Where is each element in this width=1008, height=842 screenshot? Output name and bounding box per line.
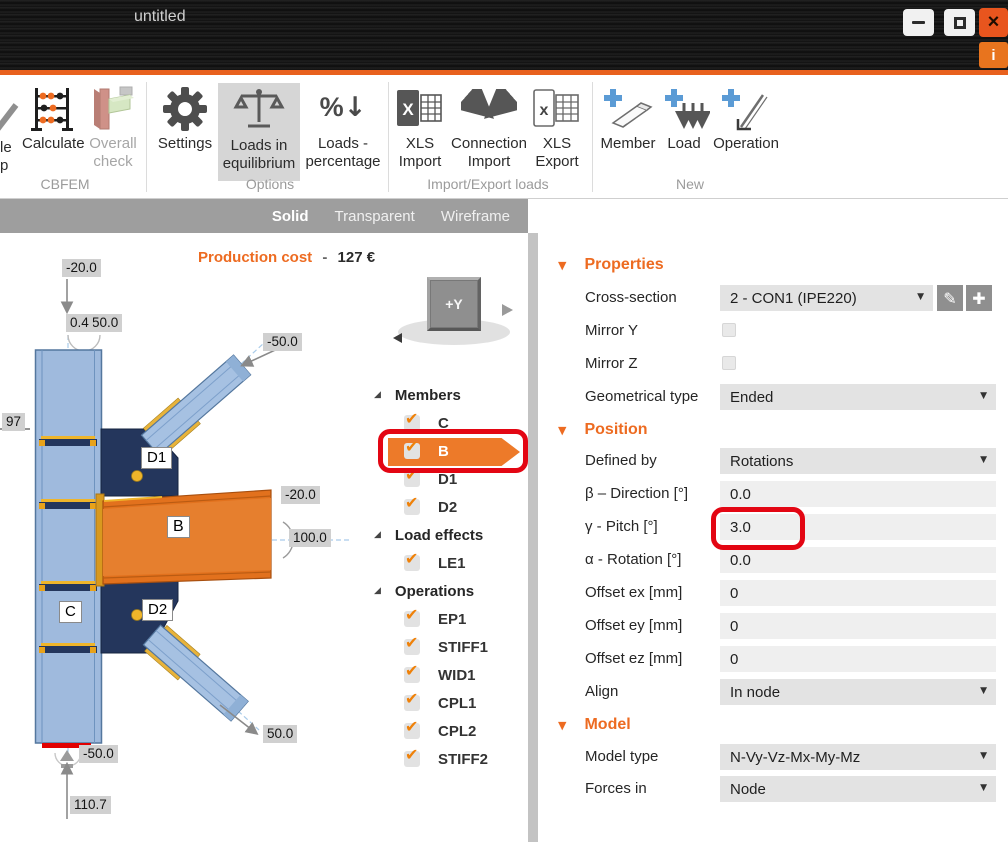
tab-wireframe[interactable]: Wireframe xyxy=(441,208,510,225)
tree-section-members[interactable]: ◢ Members xyxy=(360,382,528,408)
converging-arrows-icon xyxy=(450,83,528,133)
dim-label: 50.0 xyxy=(263,725,297,743)
tree-item-stiff1[interactable]: ✔ STIFF1 xyxy=(360,634,528,660)
production-cost: Production cost - 127 € xyxy=(198,249,375,266)
chevron-down-icon: ▼ xyxy=(980,455,987,465)
tree-item-cpl1[interactable]: ✔ CPL1 xyxy=(360,690,528,716)
loads-in-equilibrium-button[interactable]: Loads in equilibrium xyxy=(218,83,300,181)
group-label-import-export: Import/Export loads xyxy=(408,176,568,192)
settings-button[interactable]: Settings xyxy=(154,83,216,175)
tree-item-d1[interactable]: ✔ D1 xyxy=(360,466,528,492)
group-label-options: Options xyxy=(210,176,330,192)
row-offset-ey: Offset ey [mm] 0 xyxy=(538,613,1008,639)
clipped-pencil-icon xyxy=(0,83,20,133)
add-load-icon xyxy=(662,83,706,133)
abacus-icon xyxy=(22,83,82,133)
offset-ey-input[interactable]: 0 xyxy=(720,613,996,639)
chevron-down-icon: ▼ xyxy=(980,783,987,793)
model-tree: ◢ Members ✔ C ✔ B ✔ D1 ✔ D2 ◢ Load effec… xyxy=(360,233,528,842)
connection-check-icon xyxy=(84,83,142,133)
offset-ex-input[interactable]: 0 xyxy=(720,580,996,606)
gear-icon xyxy=(154,83,216,133)
percent-arrow-icon: %↓ xyxy=(302,83,384,133)
align-dropdown[interactable]: In node ▼ xyxy=(720,679,996,705)
chevron-down-icon: ▼ xyxy=(980,391,987,401)
tab-transparent[interactable]: Transparent xyxy=(335,208,415,225)
checkbox[interactable]: ✔ xyxy=(404,443,420,459)
section-collapse-icon[interactable]: ▼ xyxy=(558,259,566,272)
row-alpha-rotation: α - Rotation [°] 0.0 xyxy=(538,547,1008,573)
tree-item-stiff2[interactable]: ✔ STIFF2 xyxy=(360,746,528,772)
calculate-button[interactable]: Calculate xyxy=(22,83,82,175)
info-button[interactable]: i xyxy=(979,42,1008,68)
connection-import-button[interactable]: Connection Import xyxy=(450,83,528,175)
xls-export-button[interactable]: x XLS Export xyxy=(530,83,584,175)
section-position[interactable]: ▼ Position xyxy=(538,418,1008,442)
plus-icon: ✚ xyxy=(972,289,985,308)
title-bar: untitled × i xyxy=(0,0,1008,70)
row-forces-in: Forces in Node ▼ xyxy=(538,776,1008,802)
ribbon-separator xyxy=(146,82,147,192)
gamma-pitch-input[interactable]: 3.0 xyxy=(720,514,996,540)
member-tag-c: C xyxy=(59,601,82,623)
offset-ez-input[interactable]: 0 xyxy=(720,646,996,672)
tree-item-le1[interactable]: ✔ LE1 xyxy=(360,550,528,576)
row-cross-section: Cross-section 2 - CON1 (IPE220) ▼ ✎ ✚ xyxy=(538,285,1008,311)
edit-cross-section-button[interactable]: ✎ xyxy=(937,285,963,311)
dim-label: 110.7 xyxy=(70,796,111,814)
checkbox[interactable]: ✔ xyxy=(404,415,420,431)
new-operation-button[interactable]: Operation xyxy=(710,83,782,175)
tree-section-operations[interactable]: ◢ Operations xyxy=(360,578,528,604)
ribbon-separator xyxy=(592,82,593,192)
checkbox[interactable]: ✔ xyxy=(404,667,420,683)
mirror-y-checkbox[interactable] xyxy=(722,323,736,337)
add-cross-section-button[interactable]: ✚ xyxy=(966,285,992,311)
new-member-button[interactable]: Member xyxy=(598,83,658,175)
panel-divider[interactable] xyxy=(528,233,538,842)
detail-panel: ▼ Properties Cross-section 2 - CON1 (IPE… xyxy=(538,199,1008,842)
minimize-icon xyxy=(912,21,925,24)
ribbon-separator xyxy=(388,82,389,192)
tab-solid[interactable]: Solid xyxy=(272,208,309,225)
mirror-z-checkbox[interactable] xyxy=(722,356,736,370)
member-tag-d2: D2 xyxy=(142,599,173,621)
model-type-dropdown[interactable]: N-Vy-Vz-Mx-My-Mz ▼ xyxy=(720,744,996,770)
ribbon: le p Calculate xyxy=(0,75,1008,199)
svg-text:x: x xyxy=(540,102,549,119)
checkbox[interactable]: ✔ xyxy=(404,499,420,515)
dim-label: -20.0 xyxy=(281,486,320,504)
tree-item-b-selected[interactable]: ✔ B xyxy=(360,438,528,464)
row-align: Align In node ▼ xyxy=(538,679,1008,705)
defined-by-dropdown[interactable]: Rotations ▼ xyxy=(720,448,996,474)
collapse-icon[interactable]: ◢ xyxy=(374,390,381,400)
tree-item-cpl2[interactable]: ✔ CPL2 xyxy=(360,718,528,744)
group-label-cbfem: CBFEM xyxy=(10,176,120,192)
dim-label: 97 xyxy=(2,413,25,431)
dim-label: -50.0 xyxy=(79,745,118,763)
dim-label: 0.4 xyxy=(66,314,93,332)
window-title: untitled xyxy=(134,8,186,26)
member-tag-b: B xyxy=(167,516,190,538)
checkbox[interactable]: ✔ xyxy=(404,639,420,655)
section-model[interactable]: ▼ Model xyxy=(538,713,1008,737)
collapse-icon[interactable]: ◢ xyxy=(374,586,381,596)
svg-text:X: X xyxy=(402,100,414,119)
overall-check-button[interactable]: Overall check xyxy=(84,83,142,175)
chevron-down-icon: ▼ xyxy=(917,292,924,302)
row-gamma-pitch: γ - Pitch [°] 3.0 xyxy=(538,514,1008,540)
xls-import-button[interactable]: X XLS Import xyxy=(392,83,448,175)
xls-export-icon: x xyxy=(530,83,584,133)
checkbox[interactable]: ✔ xyxy=(404,751,420,767)
dim-label: -20.0 xyxy=(62,259,101,277)
add-operation-icon xyxy=(710,83,782,133)
pencil-icon: ✎ xyxy=(943,289,956,308)
row-geometrical-type: Geometrical type Ended ▼ xyxy=(538,384,1008,410)
tree-item-c[interactable]: ✔ C xyxy=(360,410,528,436)
tree-item-ep1[interactable]: ✔ EP1 xyxy=(360,606,528,632)
member-tag-d1: D1 xyxy=(141,447,172,469)
section-collapse-icon[interactable]: ▼ xyxy=(558,424,566,437)
checkbox[interactable]: ✔ xyxy=(404,471,420,487)
section-collapse-icon[interactable]: ▼ xyxy=(558,719,566,732)
row-defined-by: Defined by Rotations ▼ xyxy=(538,448,1008,474)
dim-label: 50.0 xyxy=(88,314,122,332)
cross-section-dropdown[interactable]: 2 - CON1 (IPE220) ▼ xyxy=(720,285,933,311)
checkbox[interactable]: ✔ xyxy=(404,695,420,711)
maximize-icon xyxy=(954,17,966,29)
new-load-button[interactable]: Load xyxy=(662,83,706,175)
forces-in-dropdown[interactable]: Node ▼ xyxy=(720,776,996,802)
chevron-down-icon: ▼ xyxy=(980,686,987,696)
row-mirror-y: Mirror Y xyxy=(538,318,1008,344)
checkbox[interactable]: ✔ xyxy=(404,723,420,739)
app-window: untitled × i le p xyxy=(0,0,1008,842)
row-offset-ex: Offset ex [mm] 0 xyxy=(538,580,1008,606)
tree-item-d2[interactable]: ✔ D2 xyxy=(360,494,528,520)
alpha-rotation-input[interactable]: 0.0 xyxy=(720,547,996,573)
row-mirror-z: Mirror Z xyxy=(538,351,1008,377)
xls-import-icon: X xyxy=(392,83,448,133)
dim-label: -50.0 xyxy=(263,333,302,351)
geometrical-type-dropdown[interactable]: Ended ▼ xyxy=(720,384,996,410)
tree-section-load-effects[interactable]: ◢ Load effects xyxy=(360,522,528,548)
loads-percentage-button[interactable]: %↓ Loads - percentage xyxy=(302,83,384,175)
dim-label: 100.0 xyxy=(289,529,331,547)
checkbox[interactable]: ✔ xyxy=(404,611,420,627)
tree-item-wid1[interactable]: ✔ WID1 xyxy=(360,662,528,688)
chevron-down-icon: ▼ xyxy=(980,751,987,761)
checkbox[interactable]: ✔ xyxy=(404,555,420,571)
maximize-button[interactable] xyxy=(944,9,975,36)
collapse-icon[interactable]: ◢ xyxy=(374,530,381,540)
close-button[interactable]: × xyxy=(979,8,1008,37)
scales-icon xyxy=(218,85,300,135)
section-properties[interactable]: ▼ Properties xyxy=(538,253,1008,277)
row-model-type: Model type N-Vy-Vz-Mx-My-Mz ▼ xyxy=(538,744,1008,770)
group-label-new: New xyxy=(630,176,750,192)
ribbon-clipped-button[interactable]: le p xyxy=(0,83,20,175)
row-offset-ez: Offset ez [mm] 0 xyxy=(538,646,1008,672)
row-beta-direction: β – Direction [°] 0.0 xyxy=(538,481,1008,507)
minimize-button[interactable] xyxy=(903,9,934,36)
beta-direction-input[interactable]: 0.0 xyxy=(720,481,996,507)
view-mode-bar: Solid Transparent Wireframe xyxy=(0,199,528,233)
add-member-icon xyxy=(598,83,658,133)
